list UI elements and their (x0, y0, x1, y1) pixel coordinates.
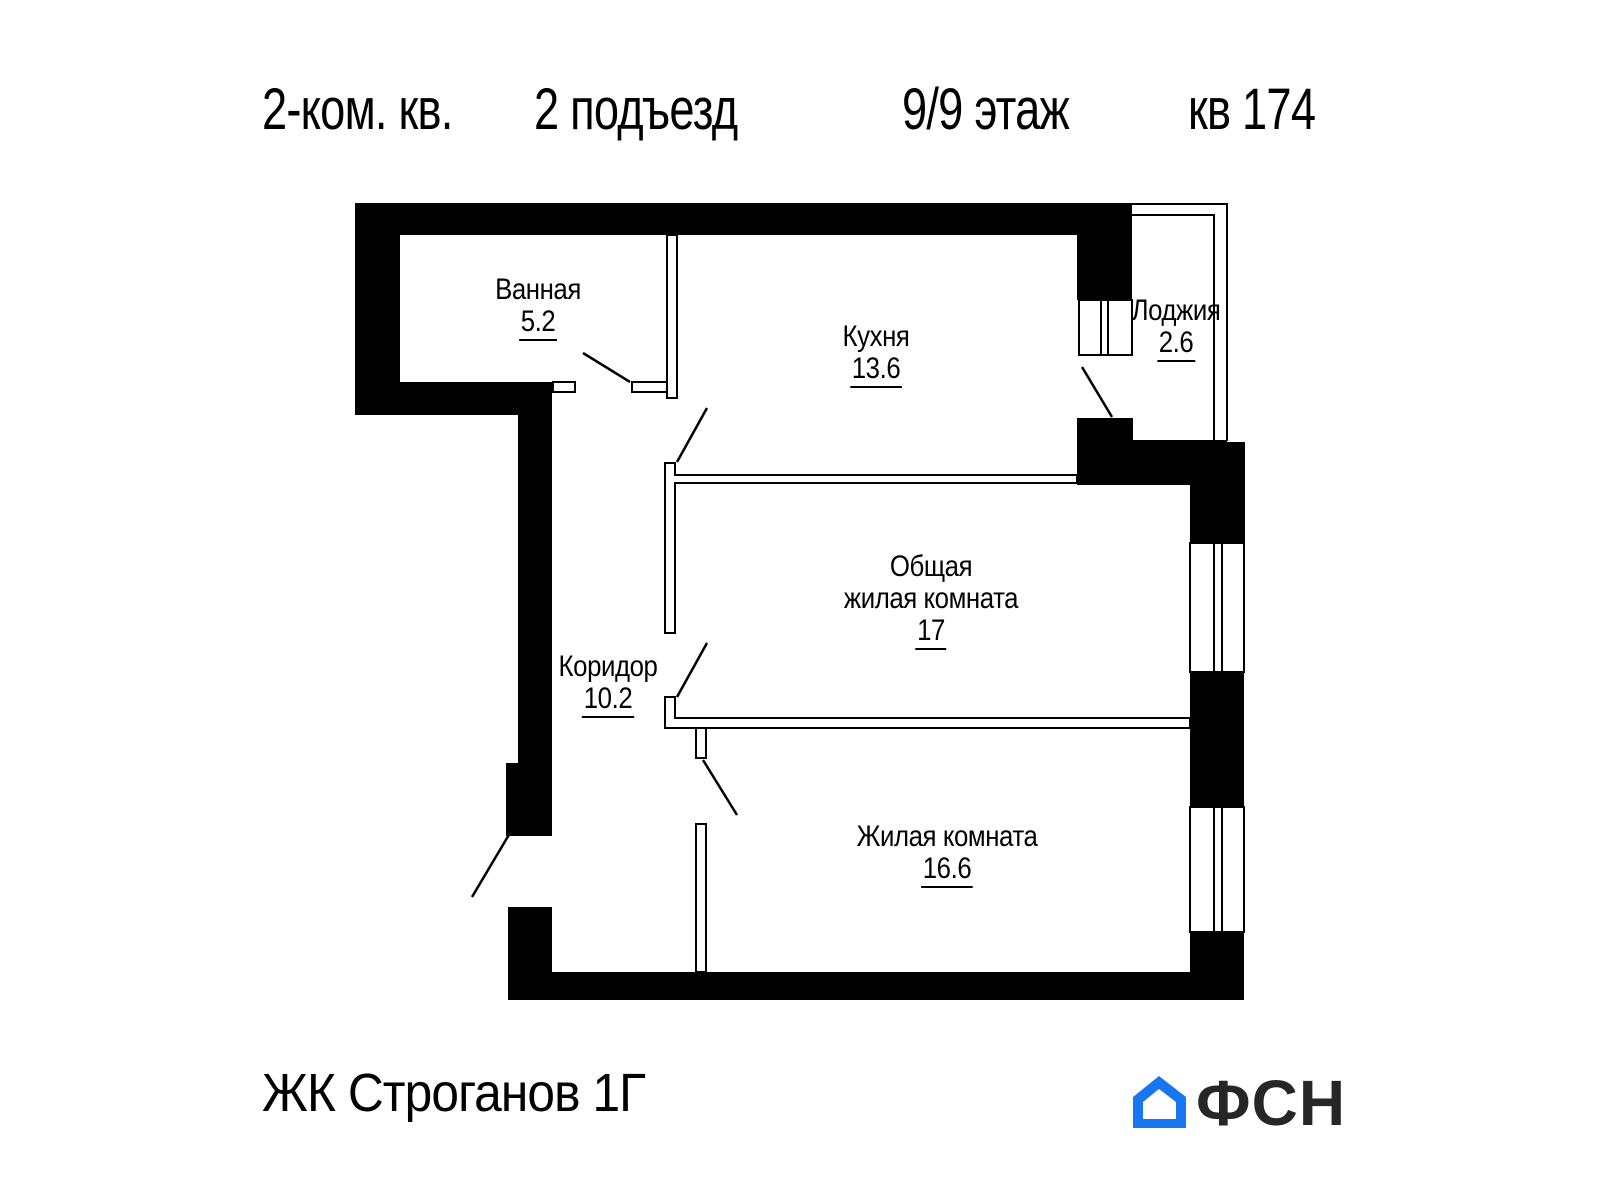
wall-corridor-left (518, 382, 552, 836)
partition-bathroom-kitchen (667, 235, 677, 398)
door-living-second (703, 760, 737, 815)
room-area-living-main: 17 (915, 615, 946, 650)
room-label-bathroom: Ванная 5.2 (488, 274, 588, 341)
room-area-corridor: 10.2 (582, 683, 634, 718)
room-name-kitchen: Кухня (843, 320, 910, 353)
wall-top (355, 203, 1132, 235)
window-living-main (1190, 543, 1244, 672)
wall-right-horizontal (1077, 442, 1245, 485)
room-label-loggia: Лоджия 2.6 (1124, 295, 1227, 362)
room-name-loggia: Лоджия (1132, 294, 1221, 327)
door-bathroom (583, 353, 630, 382)
room-name-bathroom: Ванная (495, 273, 581, 306)
wall-pilaster (506, 763, 518, 836)
title-apartment-type: 2-ком. кв. (262, 76, 453, 143)
door-entrance (472, 833, 510, 897)
logo-text: ФСН (1196, 1066, 1346, 1140)
room-name-living-second: Жилая комната (857, 820, 1038, 853)
room-label-kitchen: Кухня 13.6 (837, 321, 915, 388)
floor-plan-drawing (0, 0, 1600, 1200)
door-loggia (1082, 367, 1112, 417)
room-name-living-main-line1: Общая (890, 550, 972, 583)
windows (1079, 300, 1244, 932)
room-name-living-main-line2: жилая комната (844, 582, 1018, 615)
door-kitchen (677, 408, 707, 462)
room-area-living-second: 16.6 (921, 853, 973, 888)
wall-right-column-c (1190, 932, 1244, 1000)
footer-complex-name: ЖК Строганов 1Г (262, 1062, 645, 1124)
partition-livingsecond-upper (696, 728, 706, 758)
title-floor: 9/9 этаж (902, 76, 1069, 143)
title-apartment-number: кв 174 (1188, 76, 1315, 143)
room-area-kitchen: 13.6 (850, 353, 902, 388)
room-label-living-main: Общая жилая комната 17 (830, 551, 1033, 650)
room-label-corridor: Коридор 10.2 (551, 651, 666, 718)
bathroom-door-jamb-left (553, 382, 575, 392)
bathroom-door-jamb-right (632, 382, 667, 392)
wall-kitchen-loggia-upper (1077, 235, 1132, 300)
logo-house-icon (1133, 1076, 1186, 1128)
wall-bottom (508, 972, 1244, 1000)
floor-plan-page: 2-ком. кв. 2 подъезд 9/9 этаж кв 174 Ван… (0, 0, 1600, 1200)
partition-livingsecond-lower (696, 824, 706, 972)
wall-below-loggia-door (1077, 418, 1133, 442)
window-living-second (1190, 807, 1244, 932)
room-name-corridor: Коридор (559, 650, 658, 683)
room-label-living-second: Жилая комната 16.6 (842, 821, 1052, 888)
room-area-bathroom: 5.2 (519, 306, 557, 341)
door-living-main (677, 643, 707, 697)
partition-livingmain-bottom (665, 697, 1190, 728)
title-entrance: 2 подъезд (534, 76, 737, 143)
room-area-loggia: 2.6 (1157, 327, 1195, 362)
wall-right-column-b (1190, 672, 1244, 807)
wall-right-column-a (1190, 485, 1245, 543)
